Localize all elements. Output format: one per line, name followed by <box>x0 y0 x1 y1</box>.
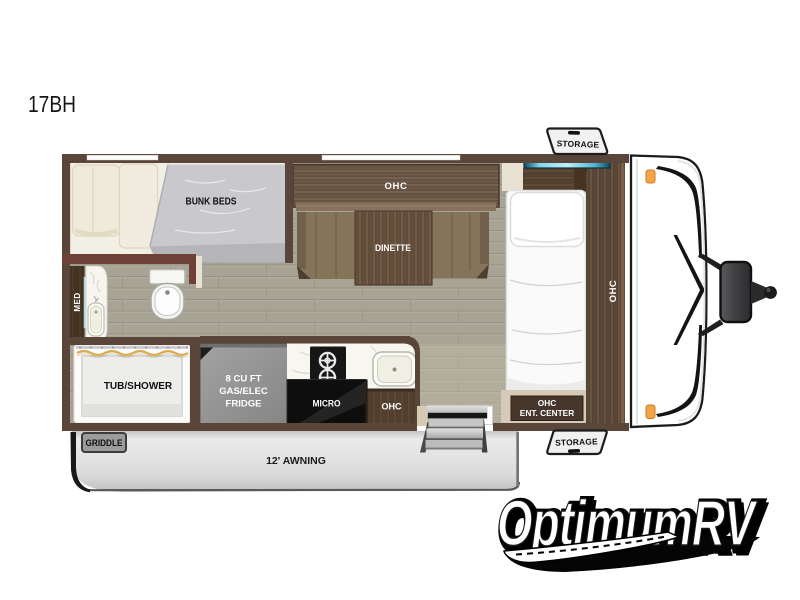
svg-text:FRIDGE: FRIDGE <box>226 399 262 410</box>
svg-text:OHC: OHC <box>382 402 403 412</box>
svg-text:BUNK BEDS: BUNK BEDS <box>186 197 237 208</box>
svg-text:DINETTE: DINETTE <box>375 243 412 254</box>
svg-text:17BH: 17BH <box>28 91 76 117</box>
svg-text:STORAGE: STORAGE <box>557 138 600 149</box>
svg-text:ENT. CENTER: ENT. CENTER <box>520 408 574 418</box>
svg-text:OHC: OHC <box>608 280 619 303</box>
svg-text:TUB/SHOWER: TUB/SHOWER <box>104 381 173 392</box>
svg-text:STORAGE: STORAGE <box>555 436 598 447</box>
svg-text:GRIDDLE: GRIDDLE <box>86 438 123 448</box>
svg-text:8 CU FT: 8 CU FT <box>226 374 262 385</box>
svg-text:OHC: OHC <box>385 181 408 192</box>
svg-text:MICRO: MICRO <box>313 399 341 409</box>
svg-text:OHC: OHC <box>538 398 556 408</box>
svg-text:12' AWNING: 12' AWNING <box>266 455 326 467</box>
svg-text:GAS/ELEC: GAS/ELEC <box>219 386 268 397</box>
svg-text:MED: MED <box>73 292 82 311</box>
